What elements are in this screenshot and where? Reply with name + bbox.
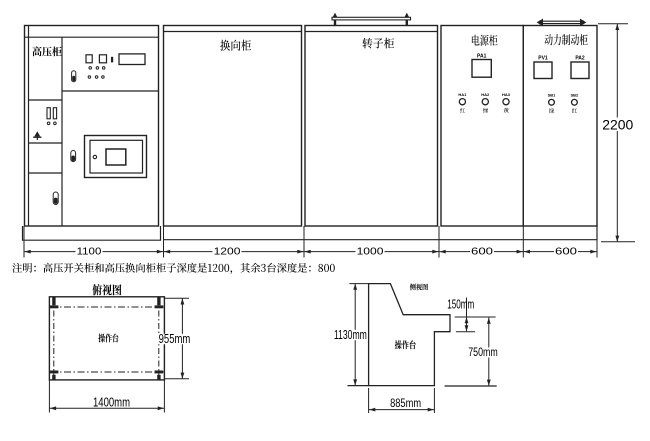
svg-text:SB2: SB2	[571, 93, 580, 98]
svg-text:2200: 2200	[602, 117, 633, 133]
svg-text:1130mm: 1130mm	[334, 328, 367, 342]
svg-text:600: 600	[555, 246, 577, 258]
svg-text:1200: 1200	[214, 246, 241, 258]
svg-text:1400mm: 1400mm	[93, 395, 130, 410]
svg-text:1000: 1000	[357, 246, 384, 258]
svg-text:600: 600	[471, 246, 493, 258]
svg-text:750mm: 750mm	[468, 345, 498, 359]
svg-text:HA3: HA3	[502, 92, 511, 97]
svg-text:HA2: HA2	[481, 92, 490, 97]
svg-text:HA1: HA1	[458, 92, 467, 97]
svg-text:1100: 1100	[77, 246, 102, 258]
svg-text:PV1: PV1	[538, 55, 548, 61]
svg-text:885mm: 885mm	[390, 396, 421, 410]
svg-text:955mm: 955mm	[159, 332, 191, 346]
svg-text:PA2: PA2	[575, 55, 585, 61]
svg-text:PA1: PA1	[477, 54, 487, 60]
svg-text:150mm: 150mm	[447, 297, 474, 312]
svg-text:SB1: SB1	[548, 93, 557, 98]
